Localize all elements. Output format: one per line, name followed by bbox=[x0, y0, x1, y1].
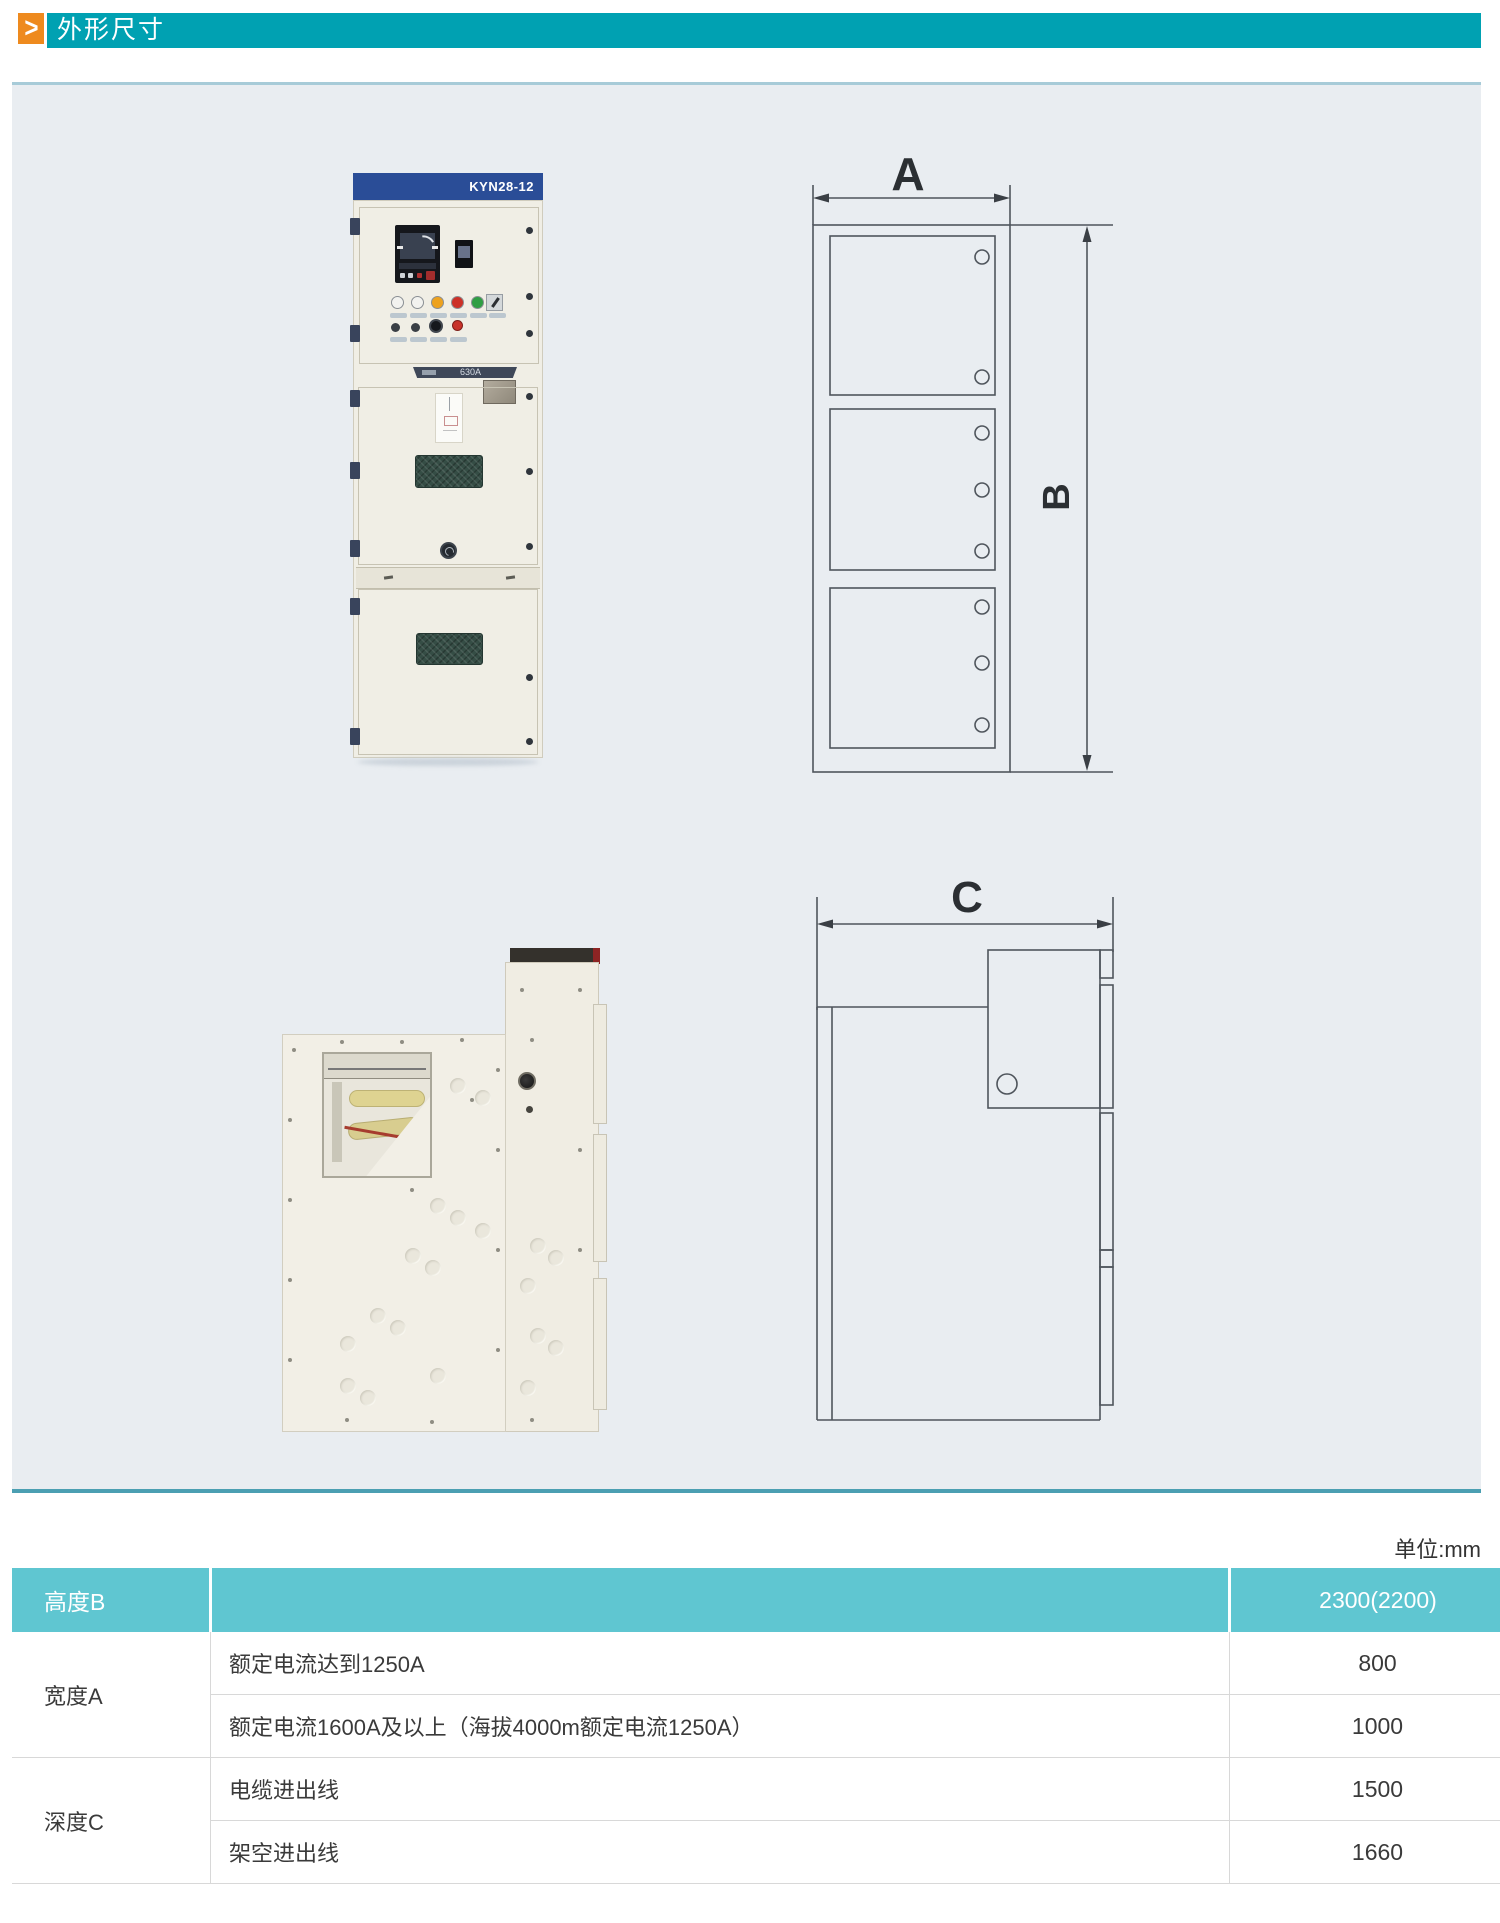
panel-screw bbox=[288, 1118, 292, 1122]
window-slot bbox=[332, 1082, 342, 1162]
table-row: 架空进出线 1660 bbox=[12, 1821, 1500, 1884]
panel-dimple bbox=[548, 1250, 564, 1266]
screw bbox=[526, 738, 533, 745]
row-value: 1000 bbox=[1230, 1695, 1500, 1758]
panel-screw bbox=[496, 1068, 500, 1072]
lamp-socket bbox=[411, 323, 420, 332]
table-row: 深度C 电缆进出线 1500 bbox=[12, 1758, 1500, 1821]
label-plate bbox=[390, 313, 407, 318]
row-desc: 额定电流达到1250A bbox=[211, 1632, 1230, 1695]
panel-screw bbox=[345, 1418, 349, 1422]
chevron-glyph: > bbox=[24, 9, 38, 47]
hinge bbox=[350, 540, 360, 557]
label-plate bbox=[410, 313, 427, 318]
row-desc: 电缆进出线 bbox=[211, 1758, 1230, 1821]
table-header-desc bbox=[211, 1568, 1230, 1632]
label-plate bbox=[470, 313, 487, 318]
drawing-lines bbox=[813, 185, 1113, 772]
panel-screw bbox=[496, 1348, 500, 1352]
hinge bbox=[350, 462, 360, 479]
panel-screw bbox=[530, 1038, 534, 1042]
hinge bbox=[350, 218, 360, 235]
panel-dimple bbox=[530, 1328, 546, 1344]
content-panel bbox=[12, 82, 1481, 1493]
panel-hole-small bbox=[526, 1106, 533, 1113]
panel-screw bbox=[410, 1188, 414, 1192]
row-desc: 额定电流1600A及以上（海拔4000m额定电流1250A） bbox=[211, 1695, 1230, 1758]
table-header-row: 高度B 2300(2200) bbox=[12, 1568, 1500, 1632]
indicator-lamp-amber bbox=[431, 296, 444, 309]
cable-door bbox=[358, 589, 538, 755]
frame-window-opening bbox=[322, 1052, 432, 1178]
screw bbox=[526, 468, 533, 475]
row-group-width: 宽度A bbox=[12, 1632, 211, 1758]
panel-screw bbox=[578, 1248, 582, 1252]
ventilation-grille bbox=[416, 633, 483, 665]
lamp-socket bbox=[391, 323, 400, 332]
cabinet-shadow bbox=[357, 758, 539, 766]
relay-button bbox=[397, 246, 403, 249]
door-separator bbox=[356, 567, 540, 589]
row-value: 1660 bbox=[1230, 1821, 1500, 1884]
relay-key bbox=[400, 273, 405, 278]
breaker-rating-label: 630A bbox=[460, 367, 481, 378]
panel-screw bbox=[496, 1248, 500, 1252]
section-header-bar: 外形尺寸 bbox=[47, 13, 1481, 48]
screw bbox=[526, 674, 533, 681]
dim-label-height: B bbox=[1036, 483, 1078, 510]
panel-screw bbox=[460, 1038, 464, 1042]
label-plate bbox=[390, 337, 407, 342]
relay-key bbox=[417, 273, 422, 278]
edge-tab bbox=[593, 1134, 607, 1262]
panel-dimple bbox=[370, 1308, 386, 1324]
label-plate bbox=[450, 313, 467, 318]
row-value: 1500 bbox=[1230, 1758, 1500, 1821]
cabinet-model-label: KYN28-12 bbox=[469, 179, 534, 194]
hinge bbox=[350, 325, 360, 342]
row-value: 800 bbox=[1230, 1632, 1500, 1695]
digital-meter bbox=[455, 240, 473, 268]
edge-tab bbox=[593, 1278, 607, 1410]
control-knob bbox=[429, 319, 443, 333]
frame-rear-panel bbox=[505, 962, 599, 1432]
panel-screw bbox=[496, 1148, 500, 1152]
panel-dimple bbox=[450, 1210, 466, 1226]
panel-dimple bbox=[520, 1278, 536, 1294]
drawing-arrowheads bbox=[813, 194, 1092, 772]
front-view-photo: KYN28-12 bbox=[353, 173, 543, 769]
side-dimension-drawing: C bbox=[800, 860, 1120, 1435]
window-rod bbox=[328, 1068, 426, 1070]
front-dimension-drawing: A B bbox=[800, 140, 1120, 800]
drawing-lines bbox=[817, 897, 1113, 1420]
hinge bbox=[350, 728, 360, 745]
indicator-lamp-red bbox=[452, 320, 463, 331]
panel-dimple bbox=[340, 1336, 356, 1352]
ventilation-grille bbox=[415, 455, 483, 488]
key-switch bbox=[486, 294, 503, 311]
screw bbox=[526, 293, 533, 300]
panel-screw bbox=[430, 1420, 434, 1424]
section-title: 外形尺寸 bbox=[47, 16, 165, 44]
panel-screw bbox=[578, 988, 582, 992]
indicator-lamp-green bbox=[471, 296, 484, 309]
label-plate bbox=[489, 313, 506, 318]
label-plate bbox=[430, 313, 447, 318]
protection-relay bbox=[395, 225, 440, 283]
panel-hole bbox=[518, 1072, 536, 1090]
row-desc: 架空进出线 bbox=[211, 1821, 1230, 1884]
table-header-value: 2300(2200) bbox=[1230, 1568, 1500, 1632]
screw bbox=[526, 330, 533, 337]
panel-dimple bbox=[450, 1078, 466, 1094]
insulator bbox=[349, 1090, 425, 1107]
relay-key bbox=[408, 273, 413, 278]
hinge bbox=[350, 598, 360, 615]
door-lock bbox=[440, 542, 457, 559]
panel-dimple bbox=[430, 1198, 446, 1214]
panel-screw bbox=[520, 988, 524, 992]
row-group-depth: 深度C bbox=[12, 1758, 211, 1884]
relay-key bbox=[426, 271, 435, 280]
panel-screw bbox=[530, 1418, 534, 1422]
panel-dimple bbox=[340, 1378, 356, 1394]
panel-screw bbox=[400, 1040, 404, 1044]
screw bbox=[526, 393, 533, 400]
side-frame-photo bbox=[280, 948, 608, 1438]
cabinet-model-band: KYN28-12 bbox=[353, 173, 543, 200]
indicator-lamp-white bbox=[391, 296, 404, 309]
panel-dimple bbox=[405, 1248, 421, 1264]
panel-dimple bbox=[520, 1380, 536, 1396]
table-header-height: 高度B bbox=[12, 1568, 211, 1632]
table-row: 宽度A 额定电流达到1250A 800 bbox=[12, 1632, 1500, 1695]
indicator-lamp-white bbox=[411, 296, 424, 309]
panel-dimple bbox=[430, 1368, 446, 1384]
breaker-tag bbox=[422, 370, 436, 375]
label-plate bbox=[450, 337, 467, 342]
breaker-rating-band: 630A bbox=[413, 367, 517, 378]
meter-screen bbox=[458, 246, 470, 258]
panel-screw bbox=[578, 1148, 582, 1152]
window-top-strip bbox=[324, 1054, 430, 1079]
chevron-icon: > bbox=[18, 13, 44, 44]
panel-screw bbox=[288, 1358, 292, 1362]
panel-screw bbox=[340, 1040, 344, 1044]
screw bbox=[526, 227, 533, 234]
relay-label-strip bbox=[399, 263, 436, 269]
panel-dimple bbox=[475, 1090, 491, 1106]
panel-dimple bbox=[360, 1390, 376, 1406]
circuit-diagram-card bbox=[435, 393, 463, 443]
panel-screw bbox=[288, 1198, 292, 1202]
dimension-table: 高度B 2300(2200) 宽度A 额定电流达到1250A 800 额定电流1… bbox=[12, 1568, 1500, 1884]
panel-dimple bbox=[390, 1320, 406, 1336]
label-plate bbox=[410, 337, 427, 342]
panel-screw bbox=[292, 1048, 296, 1052]
indicator-lamp-red bbox=[451, 296, 464, 309]
screw bbox=[526, 543, 533, 550]
instrument-door bbox=[359, 207, 539, 364]
panel-dimple bbox=[548, 1340, 564, 1356]
panel-dimple bbox=[425, 1260, 441, 1276]
hinge bbox=[350, 390, 360, 407]
page: > 外形尺寸 KYN28-12 bbox=[0, 0, 1500, 1923]
table-row: 额定电流1600A及以上（海拔4000m额定电流1250A） 1000 bbox=[12, 1695, 1500, 1758]
panel-dimple bbox=[530, 1238, 546, 1254]
dim-label-depth: C bbox=[951, 873, 983, 922]
dim-label-width: A bbox=[891, 148, 924, 200]
panel-dimple bbox=[475, 1223, 491, 1239]
panel-screw bbox=[470, 1098, 474, 1102]
panel-screw bbox=[288, 1278, 292, 1282]
edge-tab bbox=[593, 1004, 607, 1124]
unit-note: 单位:mm bbox=[1394, 1532, 1481, 1564]
relay-button bbox=[432, 246, 438, 249]
label-plate bbox=[430, 337, 447, 342]
